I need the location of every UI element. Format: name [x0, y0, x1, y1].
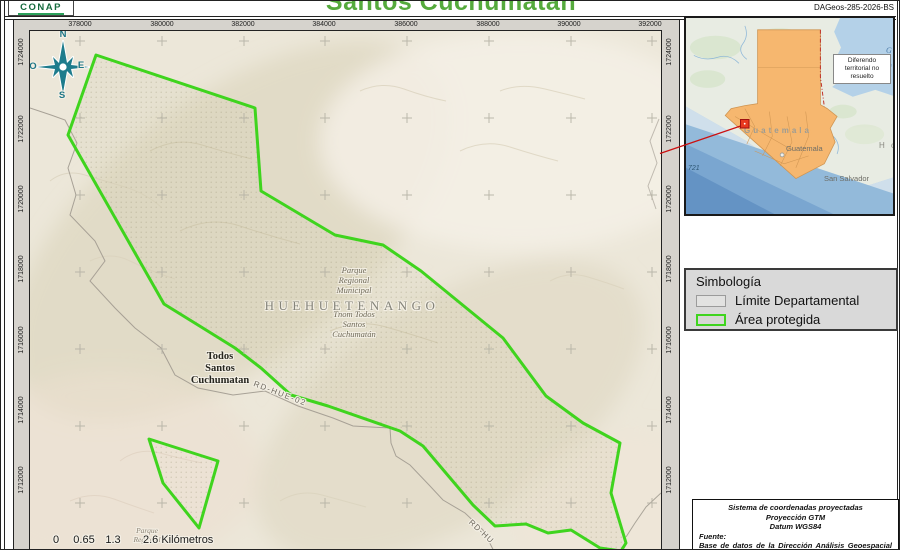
grid-tick-label: 1718000 [17, 247, 27, 291]
inset-capital-label: Guatemala [786, 144, 823, 153]
compass-north-label: N [57, 30, 69, 40]
compass-west-label: O [29, 61, 39, 72]
grid-tick-label: 388000 [458, 19, 518, 29]
legend-item-label: Área protegida [735, 312, 820, 327]
grid-tick-label: 1720000 [665, 177, 675, 221]
locator-inset-map: Guatemala Guatemala San Salvador H o 721… [684, 16, 895, 216]
label-line: Santos [160, 363, 280, 375]
inset-capital-dot [780, 153, 784, 157]
legend-box: Simbología Límite DepartamentalÁrea prot… [684, 268, 898, 331]
grid-tick-label: 1714000 [665, 388, 675, 432]
legend-title: Simbología [696, 274, 886, 289]
grid-tick-label: 392000 [620, 19, 680, 29]
datum-line: Datum WGS84 [699, 522, 892, 532]
sheet-inner-border-left [4, 1, 5, 549]
grid-tick-label: 1712000 [17, 458, 27, 502]
scale-tick-065: 0.65 [69, 534, 99, 546]
legend-item: Límite Departamental [696, 293, 886, 308]
source-text: Base de datos de la Dirección Análisis G… [699, 541, 892, 550]
scale-end-label: 2.6 Kilómetros [143, 534, 213, 546]
park-name-label: ParqueRegionalMunicipalTnom TodosSantosC… [294, 265, 414, 339]
legend-swatch-protected [696, 314, 726, 326]
grid-tick-label: 1718000 [665, 247, 675, 291]
label-line: Municipal [294, 285, 414, 295]
grid-tick-label: 1722000 [17, 107, 27, 151]
label-line: Todos [160, 351, 280, 363]
label-line: Tnom Todos [294, 309, 414, 319]
coordinate-frame: HUEHUETENANGO ParqueRegionalMunicipalTno… [13, 19, 680, 550]
compass-south-label: S [56, 90, 68, 101]
map-canvas: HUEHUETENANGO ParqueRegionalMunicipalTno… [29, 30, 662, 550]
grid-tick-label: 380000 [132, 19, 192, 29]
legend-items: Límite DepartamentalÁrea protegida [696, 293, 886, 327]
grid-tick-label: 1716000 [665, 318, 675, 362]
inset-country-label: Guatemala [726, 126, 830, 135]
document-code: DAGeos-285-2026-BS [761, 3, 894, 12]
grid-tick-label: 382000 [213, 19, 273, 29]
label-line: Parque [294, 265, 414, 275]
scale-tick-13: 1.3 [98, 534, 128, 546]
grid-tick-label: 1716000 [17, 318, 27, 362]
grid-tick-label: 1722000 [665, 107, 675, 151]
inset-san-salvador-label: San Salvador [824, 174, 869, 183]
grid-tick-label: 1714000 [17, 388, 27, 432]
label-line: Cuchumatán [294, 329, 414, 339]
inset-depth-label: 721 [688, 165, 700, 172]
inset-graphics [686, 18, 893, 214]
conap-logo: CONAP [8, 0, 74, 16]
conap-logo-text: CONAP [18, 2, 64, 15]
label-line: Regional [294, 275, 414, 285]
projection-line: Proyección GTM [699, 513, 892, 523]
grid-tick-label: 384000 [294, 19, 354, 29]
grid-tick-label: 1720000 [17, 177, 27, 221]
grid-tick-label: 390000 [539, 19, 599, 29]
scale-tick-0: 0 [46, 534, 66, 546]
grid-tick-label: 1724000 [17, 30, 27, 74]
page-title: Santos Cuchumatán [286, 0, 616, 17]
legend-item: Área protegida [696, 312, 886, 327]
inset-honduras-partial-label: H o [879, 141, 895, 150]
grid-tick-label: 1712000 [665, 458, 675, 502]
coord-system-line: Sistema de coordenadas proyectadas [699, 503, 892, 513]
source-label: Fuente: [699, 532, 892, 542]
label-line: Santos [294, 319, 414, 329]
grid-tick-label: 386000 [376, 19, 436, 29]
source-info-box: Sistema de coordenadas proyectadas Proye… [692, 499, 899, 550]
legend-item-label: Límite Departamental [735, 293, 859, 308]
grid-tick-label: 1724000 [665, 30, 675, 74]
compass-east-label: E [75, 60, 87, 71]
grid-tick-label: 378000 [50, 19, 110, 29]
inset-territorial-note: Diferendo territorial no resuelto [833, 54, 891, 84]
legend-swatch-departmental [696, 295, 726, 307]
map-sheet: CONAP Santos Cuchumatán DAGeos-285-2026-… [0, 0, 900, 550]
